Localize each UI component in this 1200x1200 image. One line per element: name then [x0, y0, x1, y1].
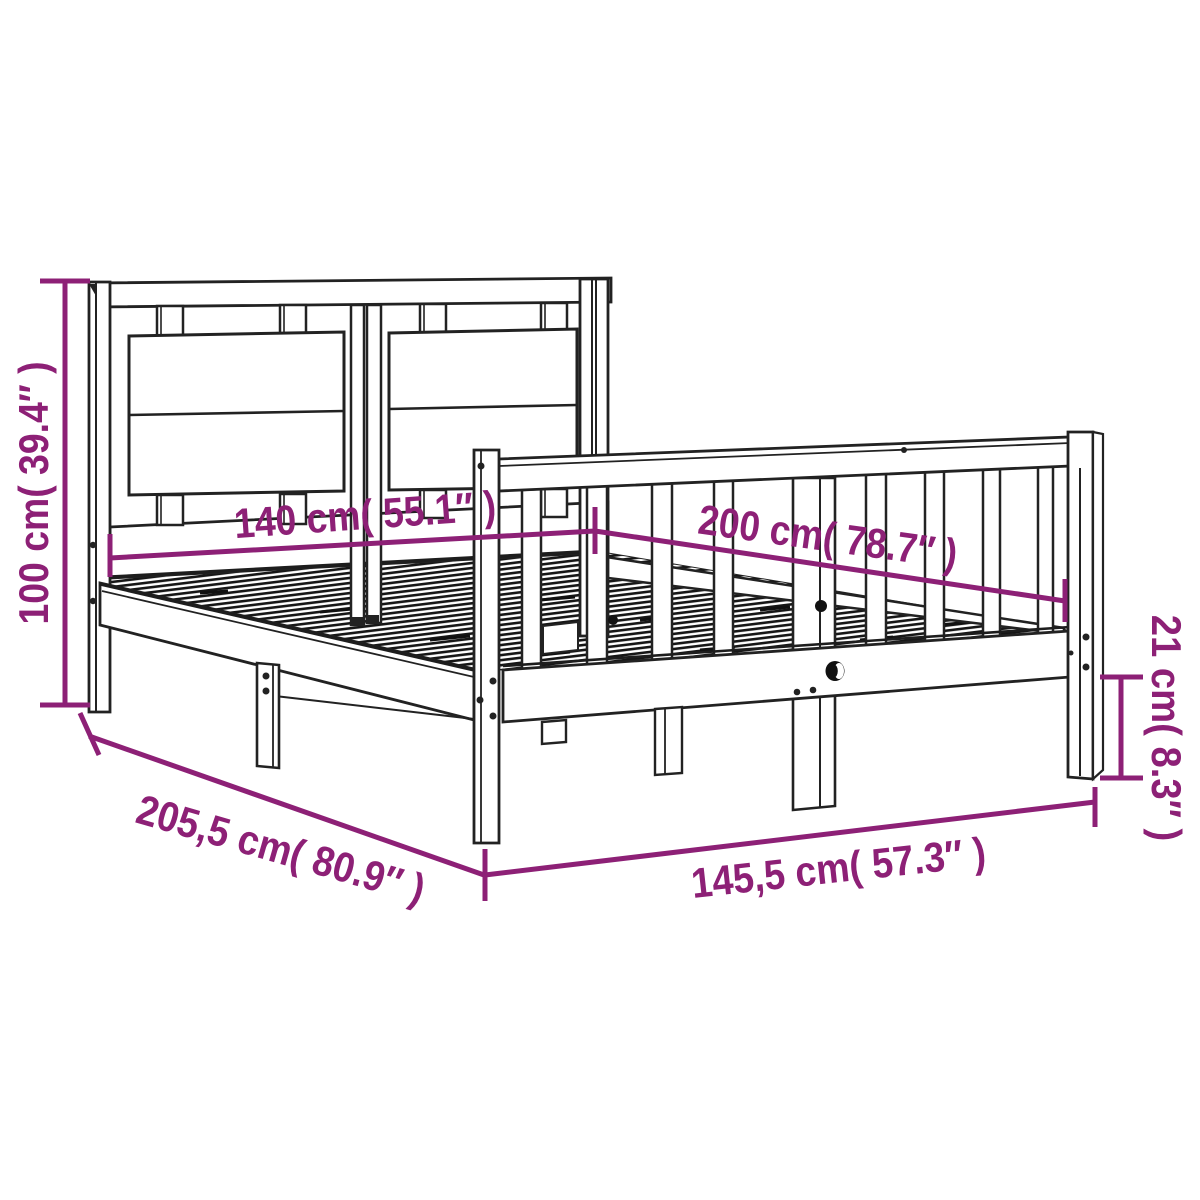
svg-text:21 cm( 8.3″ ): 21 cm( 8.3″ ) [1143, 615, 1190, 841]
svg-text:100 cm( 39.4″ ): 100 cm( 39.4″ ) [11, 361, 57, 624]
